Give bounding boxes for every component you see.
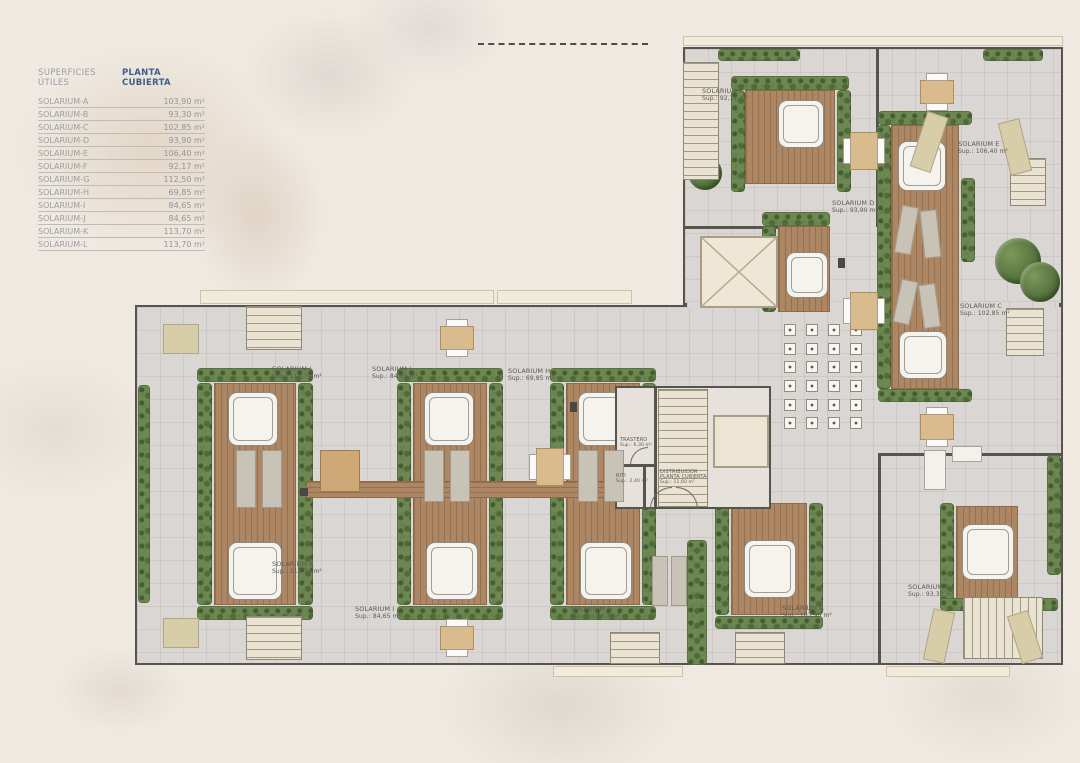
stair [1006,308,1044,356]
jacuzzi [426,542,478,600]
legend-row: SOLARIUM-K113,70 m² [38,225,205,238]
sun-lounger [671,556,687,606]
hedge [687,540,707,665]
legend-row-name: SOLARIUM-L [38,240,88,249]
room-name: SOLARIUM C [960,303,1010,310]
core-skylight [713,415,769,468]
pergola [320,450,360,492]
room-area: Sup.: 112,50 m² [570,613,620,620]
roof-eave [886,666,1010,677]
hedge [731,76,849,90]
room-area: Sup.: 2,40 m² [616,479,648,484]
property-dashed-line [478,43,648,45]
hedge [197,383,212,605]
label-solarium-a: SOLARIUM A Sup.: 103,90 m² [782,605,832,619]
sun-lounger [424,450,444,502]
solar-panel [806,417,818,429]
dining-table [536,448,564,486]
legend-row: SOLARIUM-J84,65 m² [38,212,205,225]
label-solarium-f: SOLARIUM F Sup.: 92,17 m² [702,88,748,102]
solar-panel [828,380,840,392]
jacuzzi [744,540,796,598]
room-name: SOLARIUM L [272,366,322,373]
jacuzzi [580,542,632,600]
legend-row-area: 69,85 m² [169,188,205,197]
legend-row-area: 93,30 m² [169,110,205,119]
legend-row-name: SOLARIUM-F [38,162,88,171]
solar-panel [784,417,796,429]
jacuzzi [899,331,947,379]
sun-lounger [578,450,598,502]
solar-panel [850,417,862,429]
room-area: Sup.: 93,30 m² [908,591,954,598]
hedge [397,606,503,620]
room-area: Sup.: 6,30 m² [620,443,652,448]
room-area: Sup.: 103,90 m² [782,612,832,619]
room-area: Sup.: 92,17 m² [702,95,748,102]
hedge [961,178,975,262]
room-name: SOLARIUM G [570,606,620,613]
solar-panel [806,343,818,355]
utility-box [300,488,308,496]
core-wall [654,386,657,509]
room-name: SOLARIUM A [782,605,832,612]
solar-panel [828,324,840,336]
legend-row: SOLARIUM-F92,17 m² [38,160,205,173]
legend-row-area: 106,40 m² [163,149,205,158]
hedge [809,503,823,615]
legend-row: SOLARIUM-C102,85 m² [38,121,205,134]
legend-row-name: SOLARIUM-G [38,175,90,184]
legend-row-name: SOLARIUM-A [38,97,88,106]
room-name: SOLARIUM F [702,88,748,95]
sun-lounger [236,450,256,508]
hedge [983,49,1043,61]
dining-table [920,414,954,440]
solar-panel [784,324,796,336]
solar-panel [806,399,818,411]
roof-eave [683,36,1063,46]
outdoor-furniture [924,450,946,490]
room-area: Sup.: 69,85 m² [508,375,554,382]
solar-panel-grid [784,324,864,430]
roof-eave [200,290,494,304]
solar-panel [806,324,818,336]
legend-row-name: SOLARIUM-I [38,201,85,210]
stair [246,306,302,350]
solar-panel [850,343,862,355]
hedge [877,125,891,389]
solar-panel [784,361,796,373]
legend-title: SUPERFICIES ÚTILES [38,68,122,88]
jacuzzi [962,524,1014,580]
room-name: SOLARIUM B [908,584,954,591]
label-distribuidor: DISTRIBUIDOR PLANTA CUBIERTA Sup.: 11,60… [660,470,707,485]
label-solarium-b: SOLARIUM B Sup.: 93,30 m² [908,584,954,598]
legend-row-area: 92,17 m² [169,162,205,171]
label-solarium-c: SOLARIUM C Sup.: 102,85 m² [960,303,1010,317]
legend-row-name: SOLARIUM-K [38,227,88,236]
legend-row-area: 84,65 m² [169,214,205,223]
label-solarium-h: SOLARIUM H Sup.: 69,85 m² [508,368,554,382]
legend-row-area: 84,65 m² [169,201,205,210]
roof-eave [553,666,683,677]
legend-row: SOLARIUM-H69,85 m² [38,186,205,199]
label-trastero: TRASTERO Sup.: 6,30 m² [620,438,652,448]
solar-panel [850,361,862,373]
room-area: Sup.: 11,60 m² [660,480,707,485]
outdoor-furniture [952,446,982,462]
partition-wall [878,453,881,663]
label-solarium-l: SOLARIUM L Sup.: 113,70 m² [272,366,322,380]
label-riti: RITI Sup.: 2,40 m² [616,474,648,484]
stair [246,616,302,660]
room-name: SOLARIUM D [832,200,878,207]
legend-row: SOLARIUM-A103,90 m² [38,95,205,108]
legend-row: SOLARIUM-B93,30 m² [38,108,205,121]
hedge [715,503,729,615]
roof-eave [497,290,632,304]
legend-row-name: SOLARIUM-D [38,136,89,145]
hedge [762,212,830,226]
legend-row-area: 93,90 m² [169,136,205,145]
skylight-x [700,236,778,308]
label-solarium-d: SOLARIUM D Sup.: 93,90 m² [832,200,878,214]
hedge [1047,455,1061,575]
legend-row: SOLARIUM-G112,50 m² [38,173,205,186]
legend-row-area: 112,50 m² [163,175,205,184]
label-solarium-i: SOLARIUM I Sup.: 84,65 m² [355,606,401,620]
solar-panel [850,380,862,392]
solar-panel [828,343,840,355]
legend-row-area: 103,90 m² [163,97,205,106]
solar-panel [828,417,840,429]
legend-row-area: 102,85 m² [163,123,205,132]
jacuzzi [228,392,278,446]
hedge [550,368,656,382]
stair [610,632,660,664]
core-wall [643,464,646,509]
legend-table: SUPERFICIES ÚTILES PLANTA CUBIERTA SOLAR… [38,68,205,251]
solar-panel [828,361,840,373]
solar-panel [784,343,796,355]
legend-row-name: SOLARIUM-H [38,188,89,197]
label-solarium-g: SOLARIUM G Sup.: 112,50 m² [570,606,620,620]
label-solarium-e: SOLARIUM E Sup.: 106,40 m² [958,141,1008,155]
legend-row-area: 113,70 m² [163,227,205,236]
legend-row-name: SOLARIUM-J [38,214,86,223]
room-area: Sup.: 84,65 m² [355,613,401,620]
solar-panel [850,399,862,411]
label-solarium-k: SOLARIUM K Sup.: 113,70 m² [272,561,322,575]
utility-box [838,258,845,268]
jacuzzi [778,100,824,148]
hedge [138,385,150,603]
room-name: SOLARIUM E [958,141,1008,148]
hedge [731,90,745,192]
legend-row-area: 113,70 m² [163,240,205,249]
legend-row: SOLARIUM-I84,65 m² [38,199,205,212]
solar-panel [784,380,796,392]
legend-row: SOLARIUM-L113,70 m² [38,238,205,251]
bush [1020,262,1060,302]
legend-row: SOLARIUM-E106,40 m² [38,147,205,160]
stair [683,62,719,180]
label-solarium-j: SOLARIUM J Sup.: 84,65 m² [372,366,418,380]
solar-panel [806,380,818,392]
room-name: SOLARIUM I [355,606,401,613]
room-area: Sup.: 106,40 m² [958,148,1008,155]
room-area: Sup.: 113,70 m² [272,568,322,575]
dining-table [440,626,474,650]
jacuzzi [424,392,474,446]
room-area: Sup.: 102,85 m² [960,310,1010,317]
stair [735,632,785,664]
room-name: SOLARIUM H [508,368,554,375]
dining-table [850,292,878,330]
sun-lounger [163,618,199,648]
dining-table [440,326,474,350]
solar-panel [784,399,796,411]
sun-lounger [163,324,199,354]
room-name: SOLARIUM K [272,561,322,568]
legend-row-name: SOLARIUM-B [38,110,88,119]
solar-panel [806,361,818,373]
dining-table [920,80,954,104]
dining-table [850,132,878,170]
legend-plan-name: PLANTA CUBIERTA [122,68,205,88]
legend-row-name: SOLARIUM-E [38,149,88,158]
sun-lounger [652,556,668,606]
jacuzzi [786,252,828,298]
solar-panel [828,399,840,411]
room-name: SOLARIUM J [372,366,418,373]
room-area: Sup.: 84,65 m² [372,373,418,380]
room-area: Sup.: 113,70 m² [272,373,322,380]
hedge [878,389,972,402]
sun-lounger [450,450,470,502]
legend-header: SUPERFICIES ÚTILES PLANTA CUBIERTA [38,68,205,88]
sun-lounger [262,450,282,508]
hedge [718,49,800,61]
utility-box [570,402,577,412]
legend-row: SOLARIUM-D93,90 m² [38,134,205,147]
legend-row-name: SOLARIUM-C [38,123,89,132]
floor-plan-sheet: SUPERFICIES ÚTILES PLANTA CUBIERTA SOLAR… [0,0,1080,763]
room-area: Sup.: 93,90 m² [832,207,878,214]
